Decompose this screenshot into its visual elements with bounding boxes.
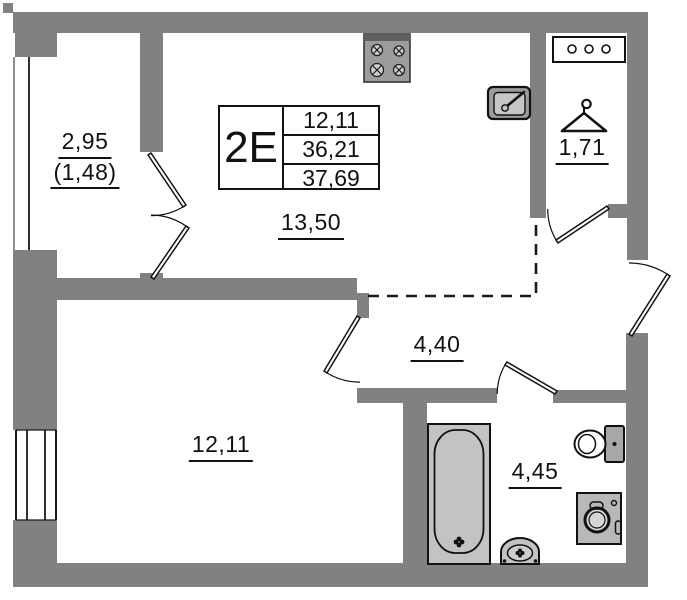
balcony-glazing (14, 57, 29, 250)
unit-area: 36,21 (284, 136, 378, 165)
balcony-area: 2,95 (59, 128, 112, 159)
bathroom-area-label: 4,45 (509, 458, 562, 489)
kitchen-living-area-label: 13,50 (278, 209, 344, 240)
zone-boundary-dashed-line (368, 218, 536, 296)
bedroom-window (16, 430, 56, 520)
unit-info-table: 2E 12,11 36,21 37,69 (218, 105, 380, 190)
walls (3, 3, 648, 587)
bathroom-door (497, 362, 557, 394)
unit-total-area: 37,69 (284, 165, 378, 192)
hallway-area-label: 1,71 (556, 134, 609, 165)
balcony-area-reduced: (1,48) (50, 159, 119, 190)
washbasin-icon (501, 538, 539, 564)
washing-machine-icon (577, 493, 621, 544)
unit-living-area: 12,11 (284, 107, 378, 136)
hallway-door (548, 206, 609, 243)
toilet-icon (575, 426, 625, 462)
cabinet-icon (553, 37, 625, 62)
stove-icon (364, 34, 410, 82)
bedroom-door (324, 316, 360, 382)
balcony-area-label: 2,95 (1,48) (50, 128, 119, 189)
unit-type: 2E (220, 107, 284, 188)
balcony-door (148, 153, 189, 279)
hanger-icon (562, 100, 606, 131)
kitchen-sink-icon (488, 87, 530, 119)
bedroom-area-label: 12,11 (189, 431, 253, 462)
unit-areas: 12,11 36,21 37,69 (284, 107, 378, 188)
floor-plan-drawing (0, 0, 687, 600)
corridor-area-label: 4,40 (411, 331, 464, 362)
floor-plan: 2,95 (1,48) 13,50 1,71 4,40 12,11 4,45 2… (0, 0, 687, 600)
entrance-door (629, 263, 670, 336)
bathtub-icon (428, 424, 490, 564)
